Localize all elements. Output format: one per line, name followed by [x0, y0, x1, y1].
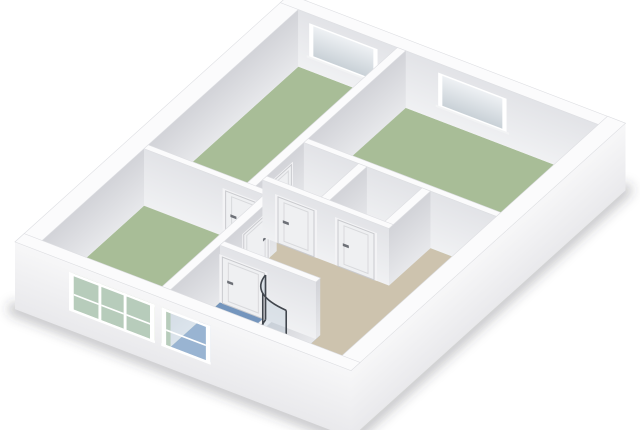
window-mullion	[69, 272, 74, 312]
window-mullion	[206, 324, 211, 364]
floorplan-stage	[0, 0, 640, 430]
floorplan-3d-canvas[interactable]	[0, 0, 640, 430]
window-mullion	[161, 307, 166, 347]
window-mullion	[150, 303, 155, 343]
window-mullion	[124, 293, 127, 333]
window-mullion	[98, 283, 101, 323]
floorplan-svg[interactable]	[0, 0, 640, 430]
